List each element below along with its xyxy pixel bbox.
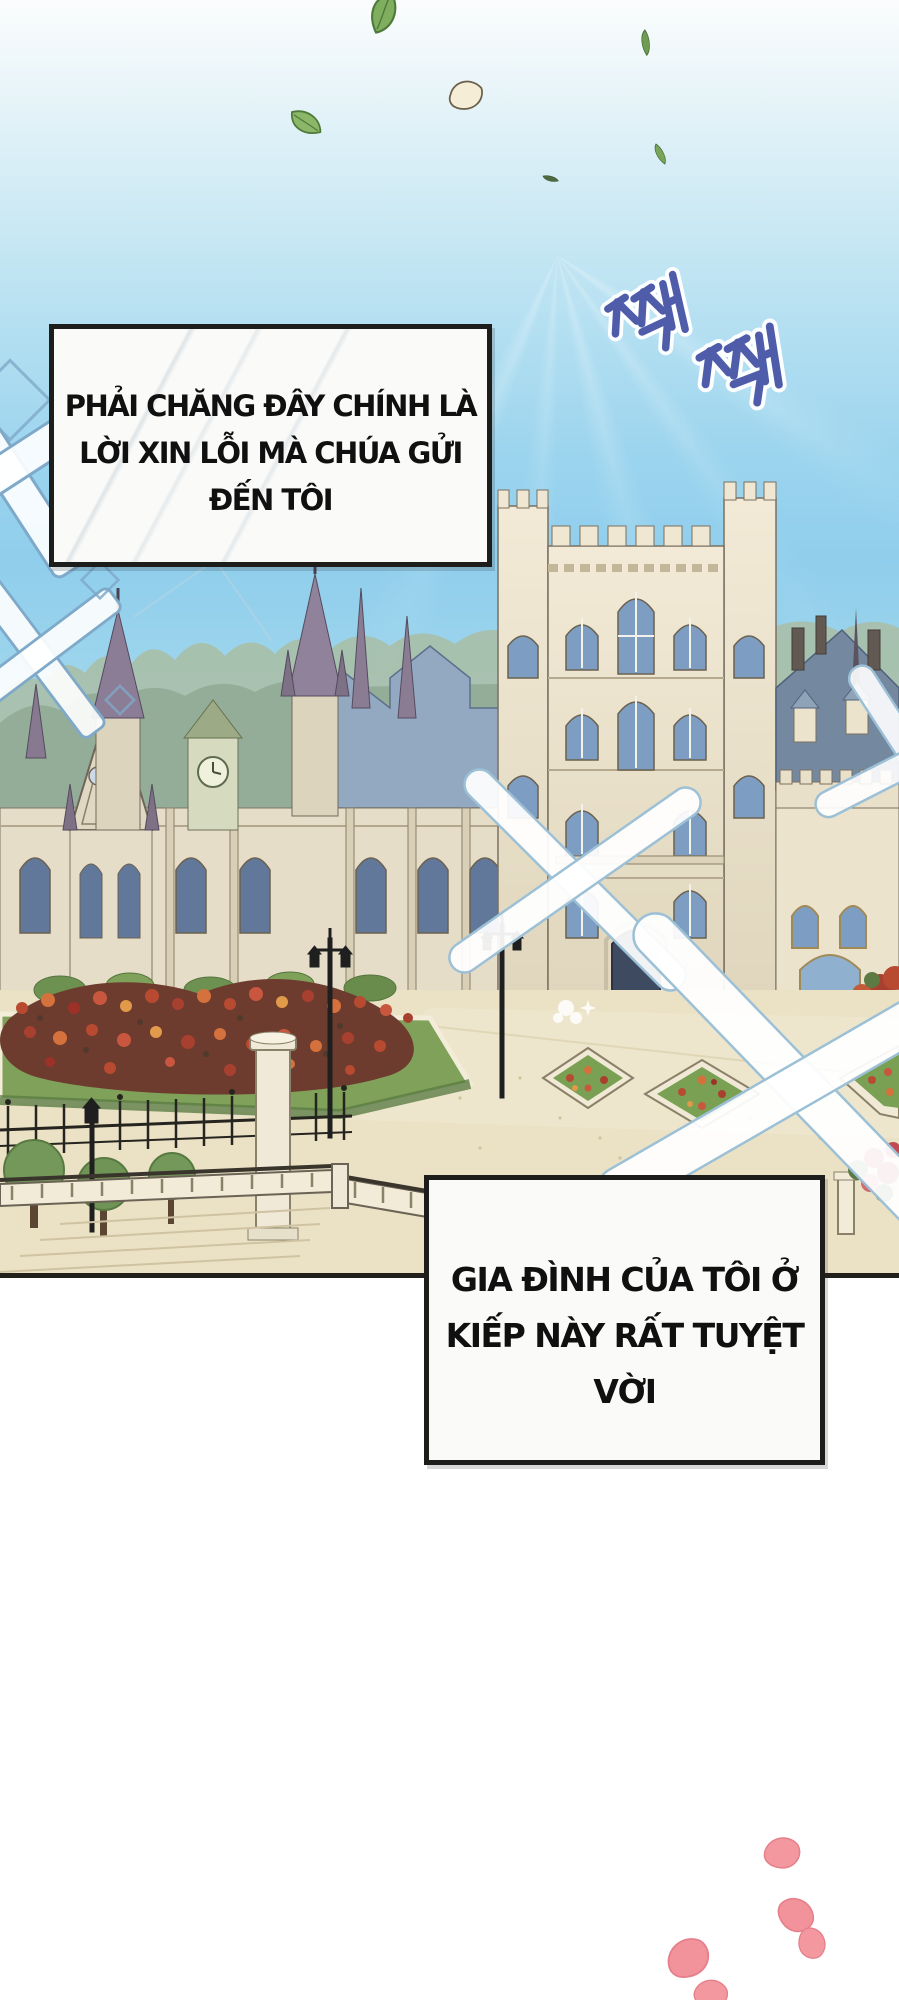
speech-box-2-text: GIA ĐÌNH CỦA TÔI Ở KIẾP NÀY RẤT TUYỆT VỜ… [429, 1252, 820, 1420]
speech-line: VỜI [429, 1364, 820, 1420]
sfx-chirp [604, 275, 786, 413]
speech-line: GIA ĐÌNH CỦA TÔI Ở [429, 1252, 820, 1308]
speech-box-1-text: PHẢI CHĂNG ĐÂY CHÍNH LÀ LỜI XIN LỖI MÀ C… [54, 383, 487, 524]
decor-overlays [0, 0, 899, 2000]
falling-leaf-icon [286, 0, 668, 183]
speech-line: KIẾP NÀY RẤT TUYỆT [429, 1308, 820, 1364]
speech-line: PHẢI CHĂNG ĐÂY CHÍNH LÀ [54, 383, 487, 430]
speech-line: ĐẾN TÔI [54, 477, 487, 524]
pink-petal-icon [664, 1834, 827, 2000]
speech-line: LỜI XIN LỖI MÀ CHÚA GỬI [54, 430, 487, 477]
comic-page: PHẢI CHĂNG ĐÂY CHÍNH LÀ LỜI XIN LỖI MÀ C… [0, 0, 899, 2000]
cream-petal-icon [448, 79, 483, 111]
speech-box-1: PHẢI CHĂNG ĐÂY CHÍNH LÀ LỜI XIN LỖI MÀ C… [49, 324, 492, 567]
speech-box-2: GIA ĐÌNH CỦA TÔI Ở KIẾP NÀY RẤT TUYỆT VỜ… [424, 1175, 825, 1465]
